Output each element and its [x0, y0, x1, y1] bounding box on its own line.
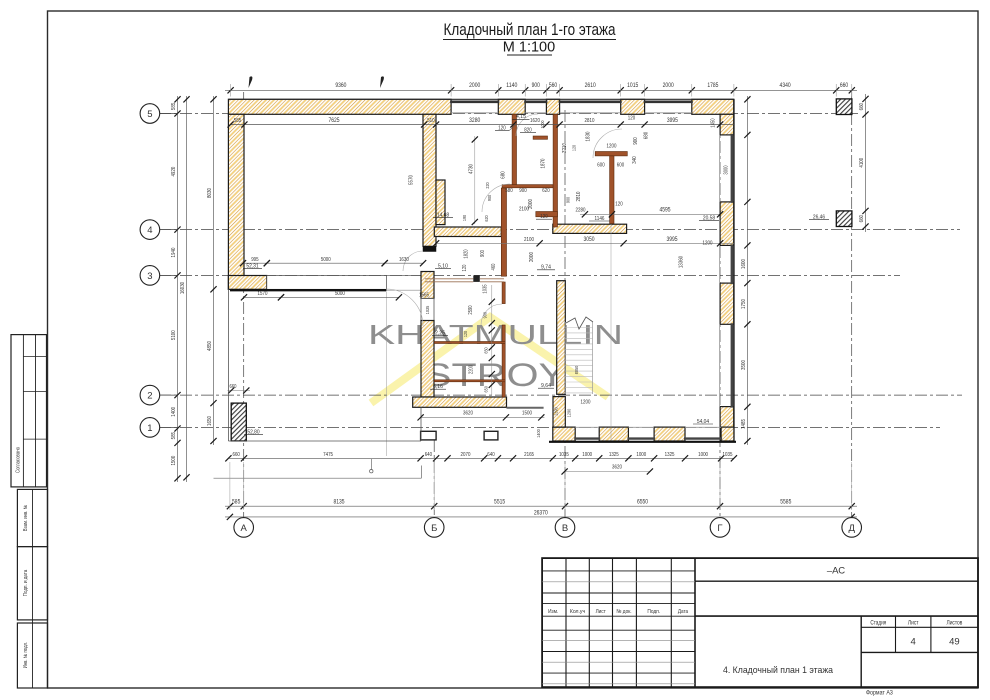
- svg-text:1830: 1830: [586, 132, 592, 142]
- svg-text:7475: 7475: [323, 452, 333, 458]
- svg-text:2: 2: [147, 391, 152, 402]
- svg-text:Инв. № подл.: Инв. № подл.: [23, 642, 29, 668]
- svg-text:Г: Г: [717, 523, 722, 534]
- svg-text:1820: 1820: [464, 249, 470, 258]
- svg-text:1600: 1600: [741, 259, 747, 269]
- svg-text:Б: Б: [431, 523, 437, 534]
- svg-text:Кол.уч: Кол.уч: [570, 609, 585, 615]
- svg-text:5000: 5000: [335, 291, 345, 297]
- svg-text:1650: 1650: [207, 416, 213, 426]
- svg-text:995: 995: [251, 257, 258, 263]
- svg-text:3995: 3995: [667, 117, 678, 124]
- svg-text:1390: 1390: [554, 407, 560, 416]
- svg-text:640: 640: [425, 452, 432, 458]
- svg-text:1940: 1940: [171, 248, 177, 258]
- svg-text:1035: 1035: [723, 452, 733, 458]
- svg-text:1000: 1000: [540, 120, 545, 128]
- svg-text:7625: 7625: [328, 117, 339, 124]
- svg-text:Лист: Лист: [596, 609, 606, 615]
- svg-text:М 1:100: М 1:100: [503, 40, 555, 56]
- svg-text:4920: 4920: [171, 167, 177, 177]
- svg-text:2610: 2610: [585, 82, 596, 89]
- svg-text:900: 900: [482, 312, 488, 319]
- svg-text:900: 900: [566, 197, 572, 204]
- svg-text:1630: 1630: [399, 257, 409, 263]
- svg-text:1015: 1015: [627, 82, 638, 89]
- svg-text:1450: 1450: [711, 118, 717, 127]
- svg-text:1290: 1290: [567, 409, 573, 418]
- svg-text:5515: 5515: [494, 499, 505, 506]
- svg-text:6550: 6550: [637, 499, 648, 506]
- svg-text:660: 660: [859, 215, 865, 222]
- svg-text:1: 1: [147, 423, 152, 434]
- svg-text:900: 900: [633, 137, 639, 144]
- svg-text:2000: 2000: [663, 82, 674, 89]
- svg-text:1000: 1000: [636, 452, 646, 458]
- svg-text:600: 600: [597, 163, 604, 169]
- svg-text:2810: 2810: [585, 118, 595, 124]
- svg-text:4100: 4100: [859, 158, 865, 168]
- svg-text:510: 510: [427, 118, 434, 124]
- svg-text:660: 660: [840, 82, 849, 89]
- svg-text:120: 120: [462, 264, 468, 271]
- svg-text:1200: 1200: [607, 144, 617, 150]
- svg-text:660: 660: [233, 452, 240, 458]
- svg-text:585: 585: [232, 499, 241, 506]
- svg-text:Стадия: Стадия: [870, 621, 886, 627]
- svg-text:1750: 1750: [741, 299, 747, 309]
- svg-text:585: 585: [171, 432, 177, 439]
- svg-text:Подп. и дата: Подп. и дата: [23, 570, 29, 597]
- svg-text:1400: 1400: [536, 429, 542, 438]
- svg-text:1325: 1325: [609, 452, 619, 458]
- svg-text:5100: 5100: [171, 330, 177, 340]
- svg-text:Лист: Лист: [908, 621, 919, 627]
- svg-text:1570: 1570: [258, 291, 268, 297]
- svg-text:13360: 13360: [679, 256, 685, 268]
- svg-text:1565: 1565: [419, 293, 429, 299]
- svg-text:1870: 1870: [541, 159, 547, 169]
- svg-text:Согласовано: Согласовано: [16, 447, 22, 473]
- svg-text:№ док.: № док.: [616, 609, 632, 615]
- svg-text:220: 220: [485, 182, 491, 189]
- svg-text:1325: 1325: [665, 452, 675, 458]
- svg-text:А: А: [241, 523, 248, 534]
- svg-text:1200: 1200: [703, 241, 713, 247]
- svg-text:900: 900: [519, 188, 526, 194]
- svg-text:Формат А3: Формат А3: [866, 690, 893, 697]
- svg-text:660: 660: [859, 103, 865, 110]
- svg-text:8050: 8050: [574, 366, 580, 375]
- svg-text:1620: 1620: [530, 118, 540, 124]
- svg-text:2590: 2590: [468, 305, 474, 314]
- svg-text:2000: 2000: [528, 199, 534, 209]
- svg-text:680: 680: [501, 171, 507, 178]
- svg-text:5570: 5570: [408, 175, 414, 185]
- svg-text:KHATMULLIN: KHATMULLIN: [368, 319, 623, 350]
- svg-text:4340: 4340: [780, 82, 791, 89]
- svg-text:1000: 1000: [698, 452, 708, 458]
- svg-text:5000: 5000: [321, 257, 331, 263]
- svg-text:2100: 2100: [524, 237, 534, 243]
- svg-text:Изм.: Изм.: [548, 609, 559, 615]
- svg-text:9360: 9360: [335, 82, 346, 89]
- svg-text:120: 120: [628, 116, 635, 122]
- svg-text:3620: 3620: [463, 411, 473, 417]
- svg-text:49: 49: [949, 637, 960, 648]
- svg-text:3995: 3995: [666, 236, 677, 243]
- svg-text:4595: 4595: [659, 206, 670, 213]
- svg-text:3500: 3500: [741, 360, 747, 370]
- svg-text:1785: 1785: [707, 82, 718, 89]
- svg-text:3620: 3620: [612, 465, 622, 471]
- svg-text:1500: 1500: [522, 411, 532, 417]
- svg-text:1400: 1400: [171, 407, 177, 417]
- svg-text:1000: 1000: [582, 452, 592, 458]
- svg-text:600: 600: [617, 163, 624, 169]
- svg-text:460: 460: [491, 263, 497, 270]
- svg-text:2165: 2165: [524, 452, 534, 458]
- svg-text:1500: 1500: [171, 456, 177, 466]
- svg-text:640: 640: [487, 452, 494, 458]
- svg-text:650: 650: [483, 386, 489, 393]
- svg-text:В: В: [562, 523, 568, 534]
- svg-text:680: 680: [644, 132, 650, 139]
- svg-text:900: 900: [487, 195, 493, 202]
- svg-text:8030: 8030: [207, 188, 213, 198]
- svg-text:2070: 2070: [461, 452, 471, 458]
- svg-text:5585: 5585: [780, 499, 791, 506]
- svg-text:Кладочный план 1-го этажа: Кладочный план 1-го этажа: [444, 21, 617, 39]
- svg-text:8135: 8135: [333, 499, 344, 506]
- svg-text:Дата: Дата: [678, 609, 689, 615]
- svg-text:3210: 3210: [562, 143, 568, 153]
- svg-text:4850: 4850: [207, 341, 213, 351]
- svg-text:Листов: Листов: [947, 621, 963, 627]
- svg-text:4: 4: [147, 225, 152, 236]
- svg-text:560: 560: [549, 82, 558, 89]
- svg-text:900: 900: [480, 250, 486, 257]
- svg-text:3: 3: [147, 271, 152, 282]
- svg-text:5: 5: [147, 109, 152, 120]
- svg-text:120: 120: [463, 331, 469, 338]
- svg-text:3050: 3050: [583, 236, 594, 243]
- svg-text:–АС: –АС: [827, 566, 845, 577]
- svg-text:650: 650: [483, 347, 489, 354]
- svg-text:120: 120: [615, 202, 622, 208]
- svg-text:1200: 1200: [581, 400, 591, 406]
- svg-text:3280: 3280: [469, 117, 480, 124]
- svg-text:1035: 1035: [425, 306, 431, 315]
- svg-text:4: 4: [911, 637, 916, 648]
- svg-text:620: 620: [484, 215, 490, 222]
- svg-text:585: 585: [171, 103, 177, 110]
- svg-text:4. Кладочный план 1 этажа: 4. Кладочный план 1 этажа: [723, 665, 834, 675]
- svg-text:Д: Д: [848, 523, 855, 534]
- svg-text:660: 660: [230, 384, 237, 390]
- svg-text:3000: 3000: [724, 165, 730, 174]
- svg-text:4730: 4730: [469, 164, 475, 174]
- svg-text:2000: 2000: [469, 82, 480, 89]
- svg-text:190: 190: [462, 215, 468, 222]
- svg-text:2280: 2280: [576, 207, 586, 213]
- svg-text:580: 580: [505, 188, 512, 194]
- svg-text:2000: 2000: [529, 252, 535, 262]
- svg-text:1485: 1485: [741, 419, 747, 429]
- svg-text:900: 900: [532, 82, 541, 89]
- svg-text:585: 585: [234, 118, 241, 124]
- svg-text:620: 620: [542, 188, 549, 194]
- svg-text:26370: 26370: [534, 509, 548, 516]
- svg-text:1140: 1140: [506, 82, 518, 89]
- svg-text:120: 120: [572, 145, 578, 152]
- svg-text:2810: 2810: [576, 192, 582, 202]
- svg-text:Подп.: Подп.: [647, 609, 660, 615]
- svg-text:1035: 1035: [483, 284, 489, 293]
- svg-text:2200: 2200: [469, 365, 475, 374]
- svg-text:340: 340: [632, 156, 638, 163]
- svg-text:16030: 16030: [180, 282, 186, 294]
- svg-text:1035: 1035: [559, 452, 569, 458]
- svg-text:Взам. инв. №: Взам. инв. №: [23, 505, 29, 531]
